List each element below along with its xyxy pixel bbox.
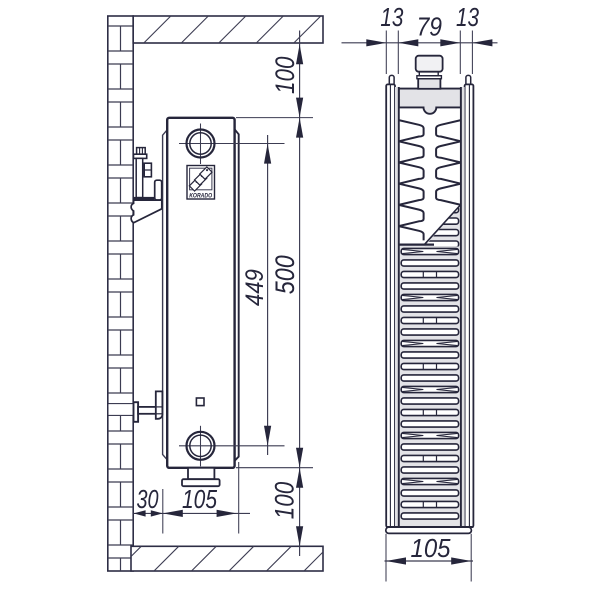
svg-text:449: 449 — [241, 269, 269, 306]
svg-text:KORADO: KORADO — [189, 194, 212, 200]
svg-text:13: 13 — [380, 2, 403, 32]
svg-text:100: 100 — [270, 56, 300, 94]
svg-text:105: 105 — [182, 484, 217, 514]
svg-text:500: 500 — [270, 255, 300, 294]
svg-text:13: 13 — [456, 2, 479, 32]
svg-text:105: 105 — [411, 533, 451, 563]
svg-text:79: 79 — [417, 11, 442, 41]
svg-text:100: 100 — [270, 482, 300, 520]
svg-text:30: 30 — [137, 484, 159, 514]
